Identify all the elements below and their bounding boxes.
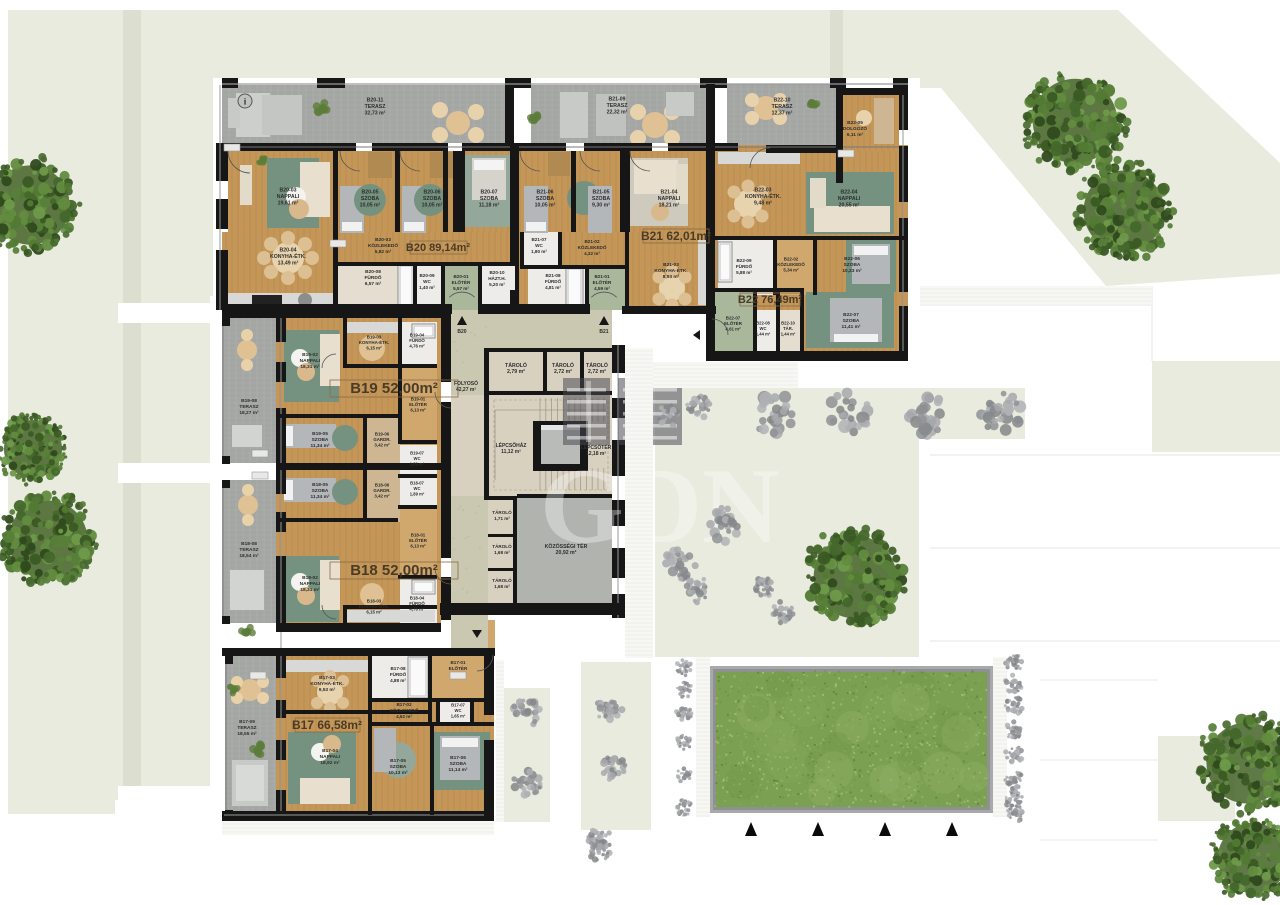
svg-text:10,05 m²: 10,05 m²: [422, 202, 443, 208]
svg-text:SZOBA: SZOBA: [450, 761, 467, 767]
svg-text:NAPPALI: NAPPALI: [320, 754, 341, 760]
svg-text:11,12 m²: 11,12 m²: [501, 449, 521, 455]
svg-text:13,49 m²: 13,49 m²: [278, 260, 299, 266]
svg-text:32,73 m²: 32,73 m²: [365, 110, 386, 116]
svg-text:B17-04: B17-04: [322, 748, 338, 754]
svg-text:B21-09: B21-09: [608, 97, 625, 103]
svg-text:TÁROLÓ: TÁROLÓ: [492, 508, 512, 515]
svg-text:NAPPALI: NAPPALI: [300, 581, 321, 587]
svg-text:B21-03: B21-03: [663, 262, 679, 268]
svg-text:B20-03: B20-03: [375, 237, 391, 243]
svg-text:4,81 m²: 4,81 m²: [545, 285, 561, 290]
svg-text:9,53 m²: 9,53 m²: [319, 687, 336, 693]
svg-text:4,88 m²: 4,88 m²: [390, 678, 406, 683]
svg-text:B22-02: B22-02: [784, 256, 799, 261]
svg-text:18,55 m²: 18,55 m²: [237, 731, 257, 737]
svg-text:B21-01: B21-01: [594, 274, 610, 279]
svg-text:WC: WC: [414, 456, 421, 461]
svg-text:SZOBA: SZOBA: [312, 437, 329, 443]
svg-text:KÖZLEKEDŐ: KÖZLEKEDŐ: [368, 242, 398, 249]
svg-text:SZOBA: SZOBA: [423, 196, 441, 202]
svg-text:1,89 m²: 1,89 m²: [410, 461, 425, 466]
svg-text:4,76 m²: 4,76 m²: [409, 344, 425, 349]
svg-text:12,37 m²: 12,37 m²: [772, 110, 793, 116]
svg-text:10,05 m²: 10,05 m²: [360, 202, 381, 208]
svg-text:B20-03: B20-03: [279, 188, 296, 194]
svg-text:B20-01: B20-01: [453, 274, 469, 279]
svg-text:B21-08: B21-08: [545, 273, 561, 278]
svg-text:11,14 m²: 11,14 m²: [449, 767, 468, 773]
svg-text:KONYHA-ÉTK.: KONYHA-ÉTK.: [270, 252, 307, 260]
svg-text:FÜRDŐ: FÜRDŐ: [390, 671, 407, 677]
svg-text:FÜRDŐ: FÜRDŐ: [545, 278, 562, 284]
svg-text:B17-01: B17-01: [450, 660, 466, 665]
svg-text:KONYHA-ÉTK.: KONYHA-ÉTK.: [359, 340, 390, 345]
svg-text:B22-03: B22-03: [754, 188, 771, 194]
svg-text:ELŐTÉR: ELŐTÉR: [593, 278, 612, 285]
svg-text:WC: WC: [760, 326, 767, 331]
svg-text:B18-02: B18-02: [302, 575, 318, 581]
svg-text:B19-02: B19-02: [302, 352, 318, 358]
svg-text:B17-07: B17-07: [451, 703, 465, 708]
svg-text:B22 76,49m²: B22 76,49m²: [738, 294, 803, 306]
svg-text:B17-05: B17-05: [390, 758, 406, 764]
svg-text:18,31 m²: 18,31 m²: [300, 587, 320, 593]
svg-text:SZOBA: SZOBA: [843, 318, 860, 324]
svg-text:5,57 m²: 5,57 m²: [453, 286, 469, 291]
svg-text:KÖZLEKEDŐ: KÖZLEKEDŐ: [578, 244, 607, 250]
svg-text:8,93 m²: 8,93 m²: [663, 274, 680, 280]
svg-text:1,80 m²: 1,80 m²: [531, 249, 547, 254]
svg-text:SZOBA: SZOBA: [480, 196, 498, 202]
svg-text:B20: B20: [457, 329, 466, 335]
svg-text:6,11 m²: 6,11 m²: [847, 132, 864, 138]
svg-text:B21-06: B21-06: [536, 190, 553, 196]
svg-text:B22-07: B22-07: [843, 312, 859, 318]
svg-text:B18-01: B18-01: [411, 532, 426, 537]
svg-text:B17-08: B17-08: [390, 666, 406, 671]
svg-text:B19-08: B19-08: [241, 398, 257, 404]
svg-text:B20-11: B20-11: [367, 98, 384, 104]
svg-text:SZOBA: SZOBA: [536, 196, 554, 202]
svg-text:18,27 m²: 18,27 m²: [239, 410, 259, 416]
svg-text:B20-06: B20-06: [423, 190, 440, 196]
svg-text:6,15 m²: 6,15 m²: [366, 610, 382, 615]
svg-text:9,30 m²: 9,30 m²: [592, 202, 610, 208]
svg-text:2,79 m²: 2,79 m²: [507, 369, 525, 375]
svg-text:18,21 m²: 18,21 m²: [659, 202, 680, 208]
svg-text:42,27 m²: 42,27 m²: [456, 387, 476, 393]
svg-text:B18-08: B18-08: [241, 541, 257, 547]
svg-text:GARDR.: GARDR.: [373, 437, 390, 442]
svg-text:TÁROLÓ: TÁROLÓ: [552, 361, 574, 369]
svg-text:10,13 m²: 10,13 m²: [388, 770, 408, 776]
svg-text:B17 66,58m²: B17 66,58m²: [292, 718, 362, 732]
svg-text:SZOBA: SZOBA: [361, 196, 379, 202]
svg-text:B18-05: B18-05: [312, 482, 328, 488]
svg-text:WC: WC: [414, 486, 421, 491]
svg-text:B22-08: B22-08: [756, 321, 770, 326]
svg-text:TÁROLÓ: TÁROLÓ: [492, 576, 512, 583]
svg-text:10,23 m²: 10,23 m²: [842, 268, 862, 274]
svg-text:B22-09: B22-09: [736, 258, 752, 263]
svg-text:B18-07: B18-07: [410, 481, 424, 486]
svg-text:FOLYOSÓ: FOLYOSÓ: [454, 379, 478, 387]
svg-text:TERASZ: TERASZ: [607, 103, 629, 109]
svg-text:4,32 m²: 4,32 m²: [584, 251, 600, 256]
svg-text:3,42 m²: 3,42 m²: [374, 443, 390, 448]
svg-text:5,88 m²: 5,88 m²: [736, 270, 752, 275]
svg-text:1,89 m²: 1,89 m²: [410, 491, 425, 496]
svg-text:B19-04: B19-04: [410, 332, 425, 337]
svg-text:ELŐTÉR: ELŐTÉR: [409, 402, 428, 407]
svg-text:NAPPALI: NAPPALI: [300, 358, 321, 364]
svg-text:1,71 m²: 1,71 m²: [494, 516, 510, 521]
svg-text:TERASZ: TERASZ: [239, 404, 258, 410]
svg-text:5,82 m²: 5,82 m²: [375, 249, 392, 255]
svg-text:WC: WC: [455, 708, 462, 713]
svg-text:B22-10: B22-10: [773, 98, 790, 104]
svg-text:11,34 m²: 11,34 m²: [311, 443, 330, 449]
svg-text:4,62 m²: 4,62 m²: [396, 714, 412, 719]
svg-text:TÁROLÓ: TÁROLÓ: [586, 361, 608, 369]
svg-text:GARDR.: GARDR.: [373, 488, 390, 493]
svg-text:B21-04: B21-04: [660, 190, 677, 196]
svg-text:B20-08: B20-08: [365, 269, 381, 275]
svg-text:4,61 m²: 4,61 m²: [725, 327, 741, 332]
svg-text:SZOBA: SZOBA: [312, 488, 329, 494]
svg-text:4,59 m²: 4,59 m²: [594, 286, 610, 291]
svg-text:B17-06: B17-06: [450, 755, 466, 761]
svg-text:B17-02: B17-02: [396, 702, 412, 707]
svg-text:B19-01: B19-01: [411, 396, 426, 401]
svg-text:B17-09: B17-09: [239, 719, 255, 725]
svg-text:B20-07: B20-07: [480, 190, 497, 196]
svg-text:1,65 m²: 1,65 m²: [451, 713, 466, 718]
svg-text:GDN: GDN: [540, 447, 780, 566]
svg-text:NAPPALI: NAPPALI: [658, 196, 681, 202]
svg-text:NAPPALI: NAPPALI: [277, 194, 300, 200]
svg-text:B19-06: B19-06: [375, 431, 390, 436]
svg-text:WC: WC: [423, 279, 431, 284]
svg-text:HÁZT.H.: HÁZT.H.: [488, 275, 506, 281]
svg-text:B22-06: B22-06: [844, 256, 860, 262]
svg-text:SZOBA: SZOBA: [844, 262, 861, 268]
svg-text:B21-05: B21-05: [592, 190, 609, 196]
svg-text:B18-03: B18-03: [367, 598, 382, 603]
svg-text:TÁROLÓ: TÁROLÓ: [492, 542, 512, 549]
svg-text:6,57 m²: 6,57 m²: [365, 281, 382, 287]
svg-text:B21-02: B21-02: [584, 239, 600, 244]
svg-text:SZOBA: SZOBA: [390, 764, 407, 770]
svg-text:20,55 m²: 20,55 m²: [839, 202, 860, 208]
svg-text:18,54 m²: 18,54 m²: [239, 553, 259, 559]
svg-text:B18 52,00m²: B18 52,00m²: [350, 562, 438, 579]
svg-text:TERASZ: TERASZ: [365, 104, 387, 110]
svg-text:11,34 m²: 11,34 m²: [311, 494, 330, 500]
svg-text:B22-05: B22-05: [847, 120, 863, 126]
svg-text:9,48 m²: 9,48 m²: [754, 200, 772, 206]
svg-text:KONYHA-ÉTK.: KONYHA-ÉTK.: [745, 192, 782, 200]
svg-text:18,31 m²: 18,31 m²: [300, 364, 320, 370]
svg-text:6,13 m²: 6,13 m²: [410, 544, 426, 549]
svg-text:5,20 m²: 5,20 m²: [489, 282, 505, 287]
svg-text:B19-07: B19-07: [410, 451, 424, 456]
svg-text:B18-06: B18-06: [375, 482, 390, 487]
svg-text:1,44 m²: 1,44 m²: [756, 331, 771, 336]
svg-text:B20-05: B20-05: [361, 190, 378, 196]
svg-text:ELŐTÉR: ELŐTÉR: [409, 538, 428, 543]
svg-text:4,76 m²: 4,76 m²: [409, 607, 425, 612]
svg-text:2,72 m²: 2,72 m²: [554, 369, 572, 375]
svg-text:1,68 m²: 1,68 m²: [494, 550, 510, 555]
svg-text:6,13 m²: 6,13 m²: [410, 408, 426, 413]
svg-text:2,72 m²: 2,72 m²: [588, 369, 606, 375]
svg-text:6,15 m²: 6,15 m²: [366, 346, 382, 351]
svg-text:B21 62,01m²: B21 62,01m²: [641, 229, 711, 243]
svg-text:1,68 m²: 1,68 m²: [494, 584, 510, 589]
svg-text:B19-03: B19-03: [367, 334, 382, 339]
svg-text:11,18 m²: 11,18 m²: [479, 202, 500, 208]
svg-text:10,05 m²: 10,05 m²: [535, 202, 556, 208]
svg-text:19,61 m²: 19,61 m²: [278, 200, 299, 206]
svg-text:22,32 m²: 22,32 m²: [607, 109, 628, 115]
svg-text:B20-04: B20-04: [279, 248, 296, 254]
svg-text:B19-05: B19-05: [312, 431, 328, 437]
svg-text:TERASZ: TERASZ: [237, 725, 256, 731]
svg-text:B22-07: B22-07: [726, 315, 741, 320]
svg-text:B21: B21: [599, 329, 608, 335]
svg-text:B19 52,00m²: B19 52,00m²: [350, 380, 438, 397]
svg-text:FÜRDŐ: FÜRDŐ: [409, 601, 425, 606]
svg-text:KÖZLEKEDŐ: KÖZLEKEDŐ: [390, 707, 419, 713]
svg-text:1,44 m²: 1,44 m²: [781, 331, 796, 336]
svg-text:B22-10: B22-10: [781, 321, 795, 326]
svg-text:KÖZLEKEDŐ: KÖZLEKEDŐ: [777, 262, 805, 267]
svg-text:ELŐTÉR: ELŐTÉR: [724, 321, 743, 326]
svg-text:FÜRDŐ: FÜRDŐ: [364, 274, 381, 281]
svg-text:B20 89,14m²: B20 89,14m²: [406, 242, 471, 254]
svg-text:B18-04: B18-04: [410, 595, 425, 600]
svg-text:TERASZ: TERASZ: [239, 547, 258, 553]
svg-text:FÜRDŐ: FÜRDŐ: [409, 338, 425, 343]
svg-text:SZOBA: SZOBA: [592, 196, 610, 202]
svg-text:B17-03: B17-03: [319, 675, 335, 681]
svg-text:TERASZ: TERASZ: [772, 104, 794, 110]
svg-text:3,42 m²: 3,42 m²: [374, 494, 390, 499]
svg-text:FÜRDŐ: FÜRDŐ: [736, 263, 753, 269]
svg-text:KONYHA-ÉTK.: KONYHA-ÉTK.: [359, 604, 390, 609]
svg-text:5,34 m²: 5,34 m²: [783, 268, 799, 273]
svg-text:TÁROLÓ: TÁROLÓ: [505, 361, 527, 369]
svg-text:LÉPCSŐHÁZ: LÉPCSŐHÁZ: [496, 441, 527, 449]
svg-text:11,41 m²: 11,41 m²: [842, 324, 861, 330]
svg-text:WC: WC: [535, 243, 543, 248]
svg-text:18,92 m²: 18,92 m²: [320, 760, 340, 766]
svg-text:ELŐTÉR: ELŐTÉR: [449, 664, 468, 671]
svg-text:TÁR.: TÁR.: [783, 326, 793, 331]
svg-text:B22-04: B22-04: [840, 190, 857, 196]
svg-text:B21-07: B21-07: [531, 237, 547, 242]
svg-text:B20-10: B20-10: [489, 270, 505, 275]
svg-text:1,40 m²: 1,40 m²: [419, 285, 435, 290]
svg-text:B20-09: B20-09: [419, 273, 435, 278]
svg-text:ELŐTÉR: ELŐTÉR: [452, 278, 471, 285]
svg-text:NAPPALI: NAPPALI: [838, 196, 861, 202]
